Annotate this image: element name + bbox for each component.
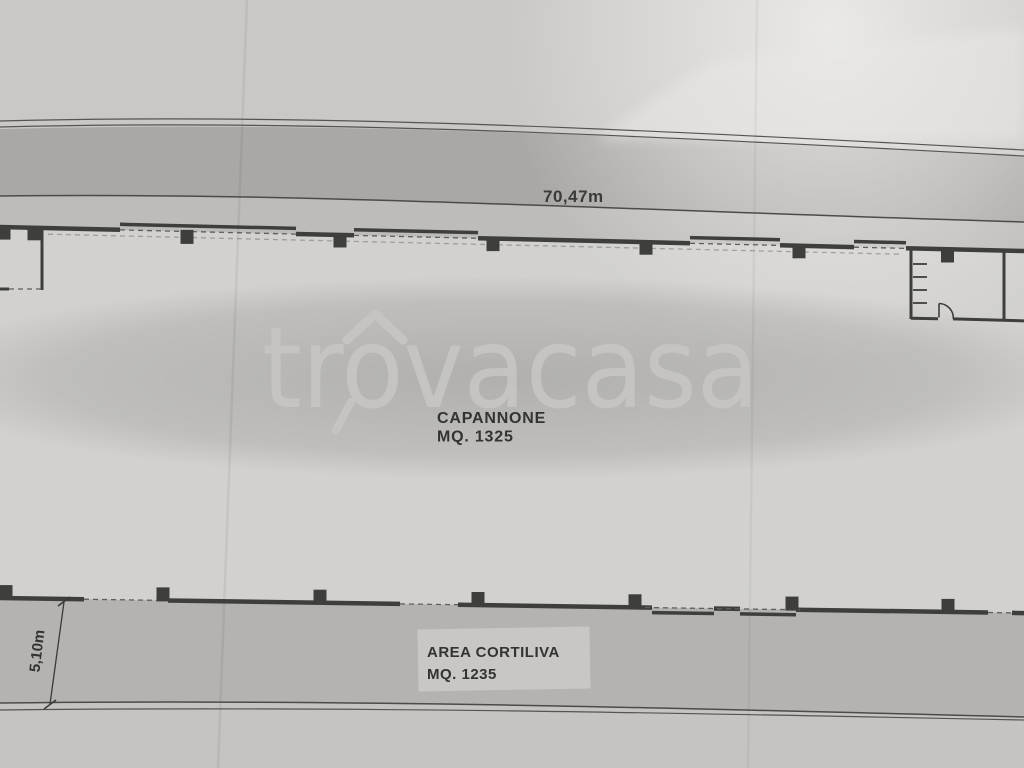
pilaster <box>640 241 653 255</box>
pilaster <box>181 230 194 244</box>
pilaster <box>28 226 41 240</box>
pilaster <box>487 237 500 251</box>
pilaster <box>0 585 13 599</box>
courtyard-area-label: MQ. 1235 <box>427 666 497 683</box>
window-sill <box>854 242 906 243</box>
site-plan-drawing: trovacasa 70,47m CAPANNONE MQ. 1325 AREA… <box>0 0 1024 768</box>
pilaster <box>941 251 954 263</box>
pilaster <box>157 587 170 601</box>
window-sill <box>652 613 714 614</box>
window-sill <box>740 614 796 615</box>
pilaster <box>0 226 11 240</box>
pilaster <box>472 592 485 606</box>
wall-segment <box>796 610 988 613</box>
scanned-floor-plan-page: trovacasa 70,47m CAPANNONE MQ. 1325 AREA… <box>0 0 1024 768</box>
wall-segment <box>0 227 120 230</box>
room-bottom-wall <box>953 319 1024 321</box>
window-sill <box>690 238 780 240</box>
pilaster <box>942 599 955 613</box>
wall-segment <box>458 605 652 608</box>
wall-segment <box>906 248 1024 251</box>
warehouse-area-label: MQ. 1325 <box>437 429 514 446</box>
warehouse-name-label: CAPANNONE <box>437 410 546 427</box>
wall-segment <box>780 245 854 247</box>
street-dimension-label: 70,47m <box>543 187 604 206</box>
pilaster <box>334 234 347 248</box>
pilaster <box>786 597 799 611</box>
pilaster <box>629 594 642 608</box>
courtyard-name-label: AREA CORTILIVA <box>427 644 560 661</box>
wall-segment <box>0 598 84 599</box>
pilaster <box>314 590 327 604</box>
pilaster <box>793 244 806 258</box>
